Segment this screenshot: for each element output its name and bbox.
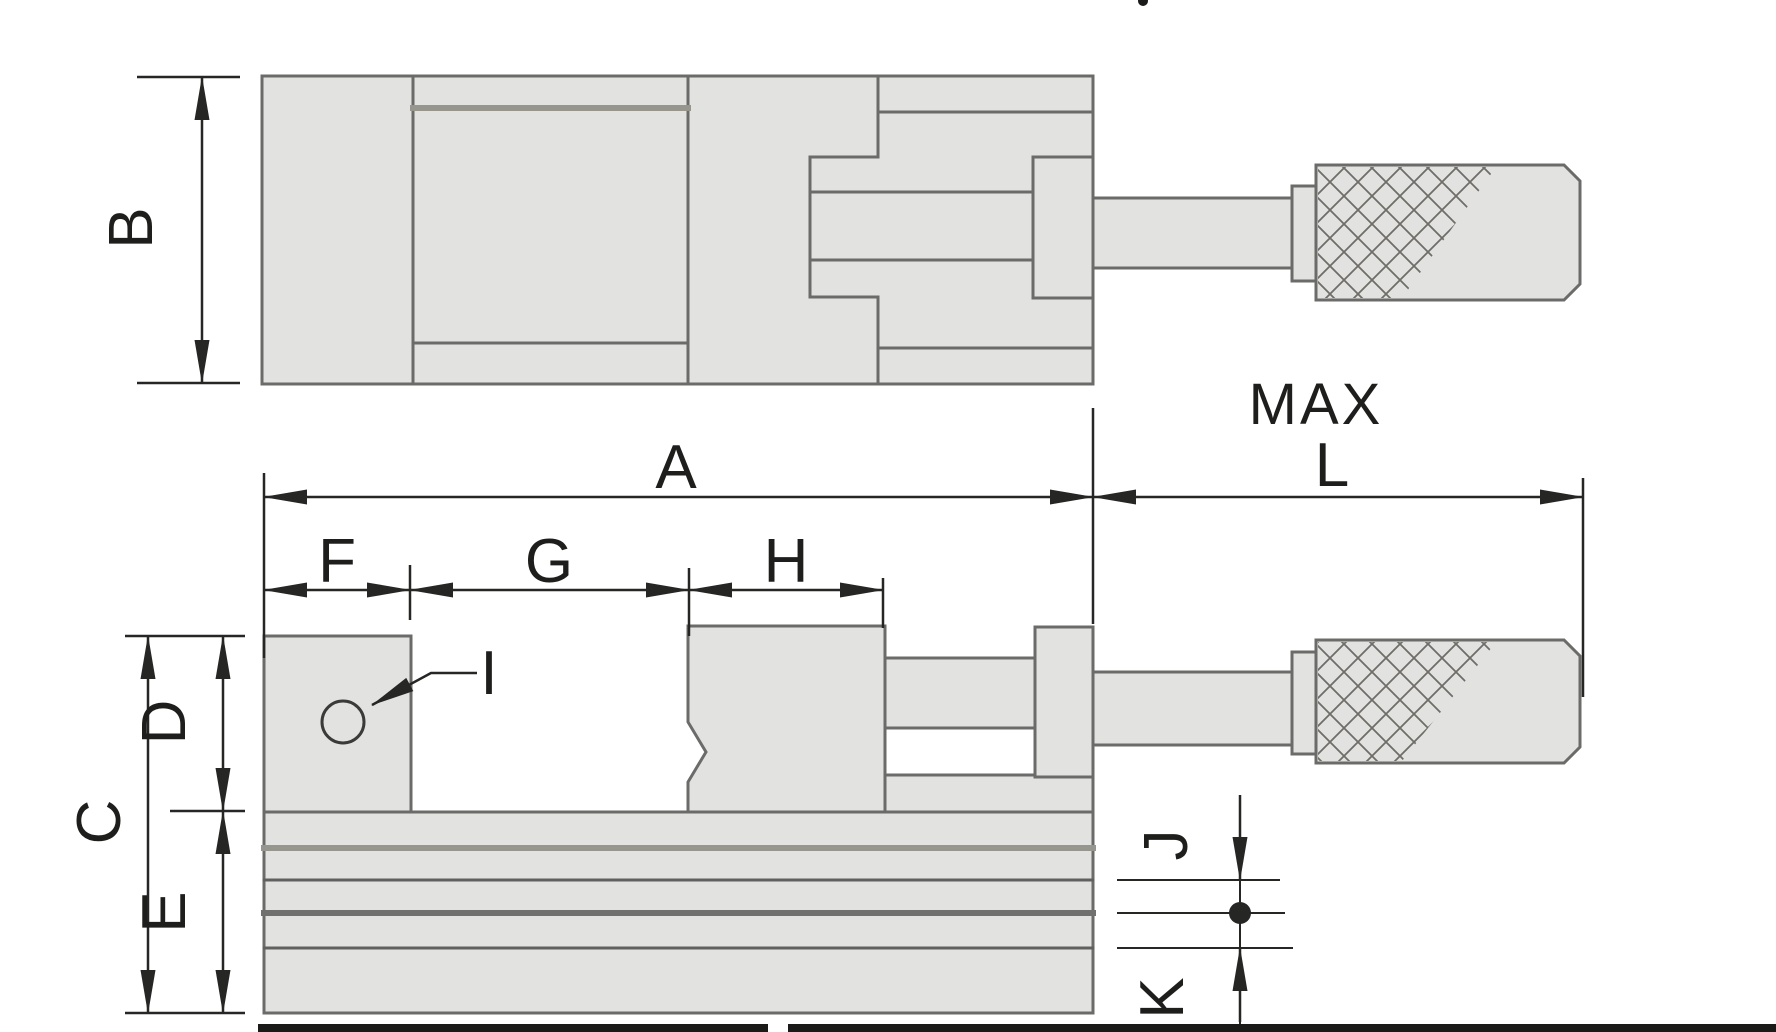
cropped-text-dot-top [1138, 0, 1148, 6]
dim-label-j: J [1132, 830, 1201, 861]
end-bracket-top-view [1033, 157, 1093, 298]
dim-label-e: E [130, 891, 199, 932]
drawing-canvas: A B C D E F G H I J K L MAX [0, 0, 1776, 1032]
collar-top-view [1292, 186, 1316, 281]
vise-technical-drawing: A B C D E F G H I J K L MAX [0, 0, 1776, 1032]
jk-reference-dot [1229, 902, 1251, 924]
dim-label-l: L [1315, 431, 1349, 500]
dim-label-max: MAX [1249, 372, 1384, 437]
dim-label-d: D [130, 700, 199, 745]
top-view [262, 76, 1580, 384]
screw-rod [885, 658, 1035, 728]
dim-label-b: B [97, 207, 166, 248]
collar-side-view [1292, 652, 1316, 754]
screw-shaft-side-view [1093, 672, 1292, 745]
dim-label-a: A [655, 433, 697, 502]
dim-label-k: K [1128, 977, 1197, 1018]
cropped-rule-bottom-right [788, 1024, 1776, 1032]
dim-label-g: G [525, 527, 573, 596]
end-bracket-side-view [1035, 627, 1093, 777]
dim-label-h: H [764, 527, 809, 596]
screw-shaft-top-view [1093, 198, 1292, 268]
dim-label-f: F [318, 527, 356, 596]
top-view-body [262, 76, 1093, 384]
dim-label-c: C [65, 800, 134, 845]
dim-label-i: I [480, 639, 497, 708]
jaw-hole [322, 701, 364, 743]
side-view [264, 626, 1580, 1013]
moving-jaw [688, 626, 885, 812]
cropped-rule-bottom-left [258, 1024, 768, 1032]
guide-bar [885, 775, 1093, 812]
